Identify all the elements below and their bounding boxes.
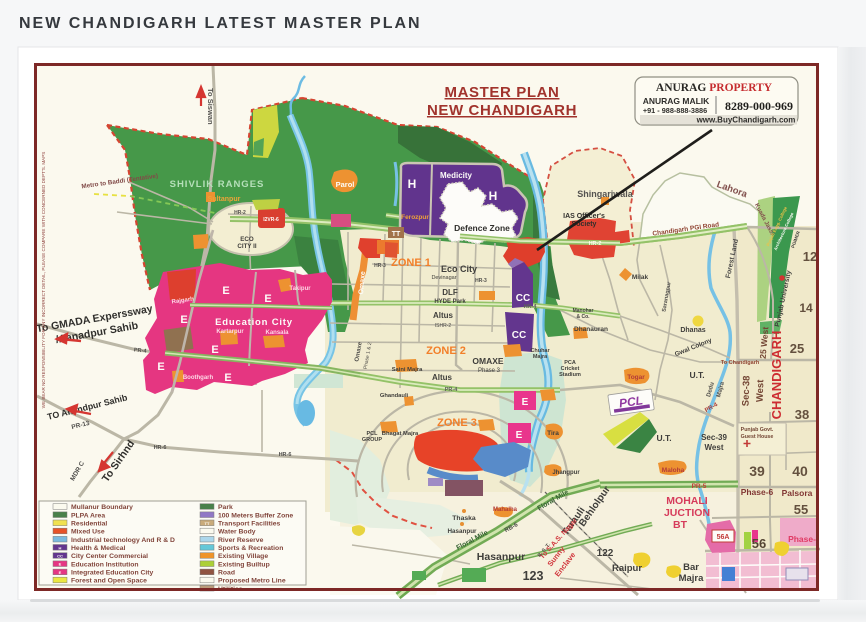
svg-text:NEW CHANDIGARH LATEST MASTER P: NEW CHANDIGARH LATEST MASTER PLAN [19,15,422,32]
